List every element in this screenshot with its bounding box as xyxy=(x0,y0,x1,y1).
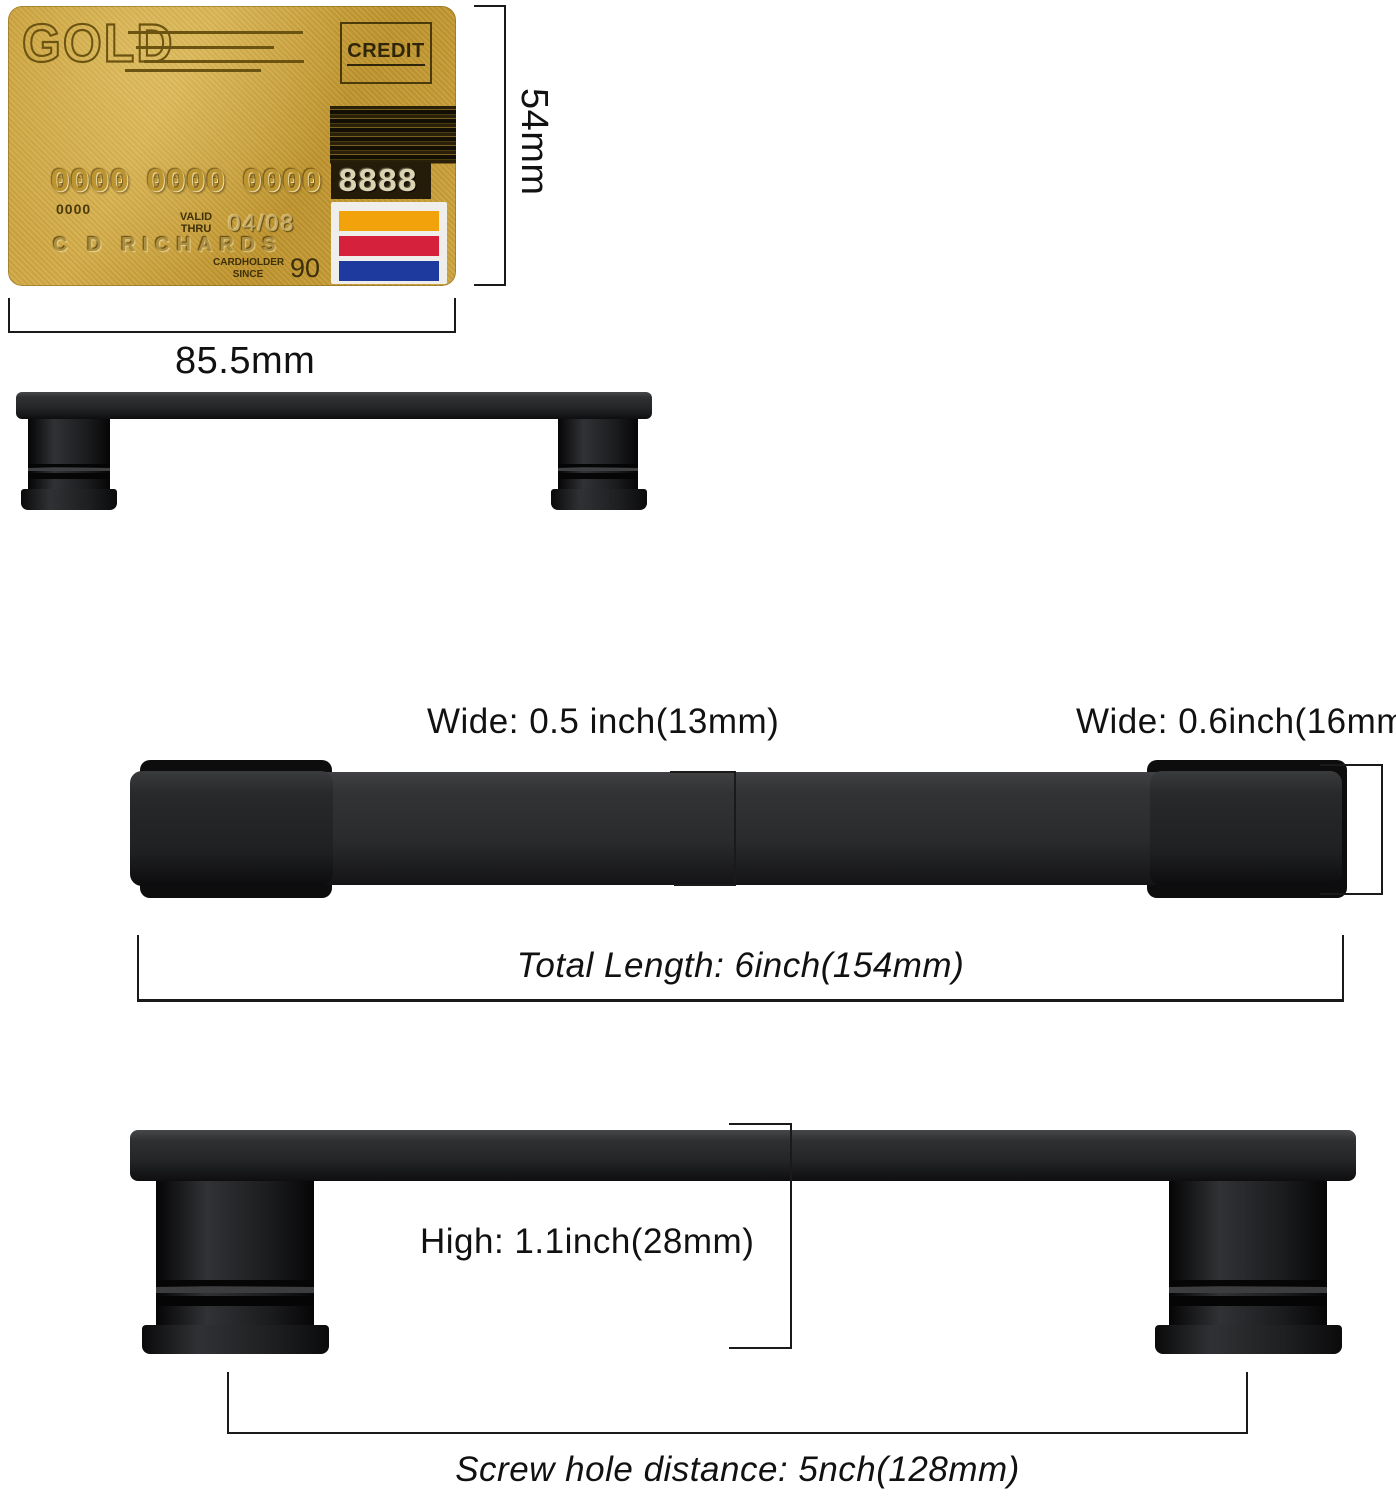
bar-wide-dim-line xyxy=(734,771,736,886)
screw-distance-dim-left-tick xyxy=(227,1372,229,1434)
total-length-dim-label: Total Length: 6inch(154mm) xyxy=(137,946,1344,986)
flag-stripe-red xyxy=(339,236,439,256)
handle-right-foot xyxy=(551,489,647,510)
cardholder-since-label: CARDHOLDER SINCE xyxy=(213,257,283,281)
leg-groove xyxy=(28,468,110,471)
flag-stripe-orange xyxy=(339,211,439,231)
cap-wide-dim-bottom-tick xyxy=(1320,893,1383,895)
card-number-group: 8888 xyxy=(338,164,417,201)
card-flag-stripes xyxy=(331,202,447,284)
leg-groove xyxy=(1169,1287,1327,1293)
leg-groove xyxy=(558,464,638,467)
card-decor-line xyxy=(136,46,274,49)
height-dim-line xyxy=(790,1123,792,1349)
card-height-dim-top-tick xyxy=(474,5,505,7)
cap-wide-dim-label: Wide: 0.6inch(16mm) xyxy=(1076,702,1396,742)
leg-groove xyxy=(1169,1280,1327,1286)
card-decor-line xyxy=(125,69,261,72)
total-length-dim-line xyxy=(137,999,1344,1002)
card-brand-text: GOLD xyxy=(22,12,174,75)
card-width-dim-line xyxy=(8,331,456,333)
leg-groove xyxy=(558,473,638,479)
magnetic-stripe-block xyxy=(330,106,456,164)
screw-distance-dim-line xyxy=(227,1432,1248,1434)
leg-groove xyxy=(156,1287,314,1293)
since-label-line1: CARDHOLDER xyxy=(213,257,283,269)
leg-groove xyxy=(28,473,110,479)
valid-thru-label: VALID THRU xyxy=(174,211,218,235)
card-width-dim-left-tick xyxy=(8,298,10,333)
bar-wide-dim-bottom-tick xyxy=(674,884,736,886)
leg-groove xyxy=(558,468,638,471)
bar-wide-dim-top-tick xyxy=(670,771,736,773)
valid-thru-value: 04/08 xyxy=(228,210,296,237)
height-dim-top-tick xyxy=(729,1123,792,1125)
credit-label-box: CREDIT xyxy=(340,22,432,84)
card-width-dim-label: 85.5mm xyxy=(175,340,315,383)
card-number-group: 0000 xyxy=(146,164,225,201)
credit-card-image: GOLD CREDIT 0000 0000 0000 8888 0000 VAL… xyxy=(8,6,456,286)
credit-label: CREDIT xyxy=(347,40,424,66)
card-height-dim-label: 54mm xyxy=(512,88,555,196)
card-decor-line xyxy=(128,31,303,34)
cardholder-since-value: 90 xyxy=(290,253,320,284)
valid-label-line1: VALID xyxy=(174,211,218,223)
leg-groove xyxy=(1169,1296,1327,1306)
flag-stripe-blue xyxy=(339,261,439,281)
handle-left-end-cap xyxy=(130,771,333,886)
card-decor-line xyxy=(144,60,304,63)
screw-distance-dim-right-tick xyxy=(1246,1372,1248,1434)
cap-wide-dim-top-tick xyxy=(1320,764,1383,766)
screw-distance-dim-label: Screw hole distance: 5nch(128mm) xyxy=(227,1450,1248,1490)
bar-wide-dim-label: Wide: 0.5 inch(13mm) xyxy=(427,702,779,742)
card-small-number: 0000 xyxy=(56,201,91,217)
card-number-group: 0000 xyxy=(50,164,129,201)
handle-right-foot xyxy=(1155,1325,1342,1354)
since-label-line2: SINCE xyxy=(213,269,283,281)
leg-groove xyxy=(156,1280,314,1286)
handle-left-foot xyxy=(142,1325,329,1354)
handle-right-end-cap xyxy=(1150,771,1342,886)
card-number-group: 0000 xyxy=(242,164,321,201)
handle-left-foot xyxy=(21,489,117,510)
leg-groove xyxy=(28,464,110,467)
cap-wide-dim-line xyxy=(1381,764,1383,895)
handle-bar xyxy=(16,392,652,419)
cardholder-name: C D RICHARDS xyxy=(53,234,283,257)
card-width-dim-right-tick xyxy=(454,298,456,333)
product-dimension-diagram: GOLD CREDIT 0000 0000 0000 8888 0000 VAL… xyxy=(0,0,1396,1500)
height-dim-bottom-tick xyxy=(729,1347,792,1349)
card-height-dim-bottom-tick xyxy=(474,284,505,286)
handle-bar xyxy=(130,1130,1356,1181)
leg-groove xyxy=(156,1296,314,1306)
height-dim-label: High: 1.1inch(28mm) xyxy=(420,1222,754,1262)
card-height-dim-line xyxy=(504,5,506,286)
